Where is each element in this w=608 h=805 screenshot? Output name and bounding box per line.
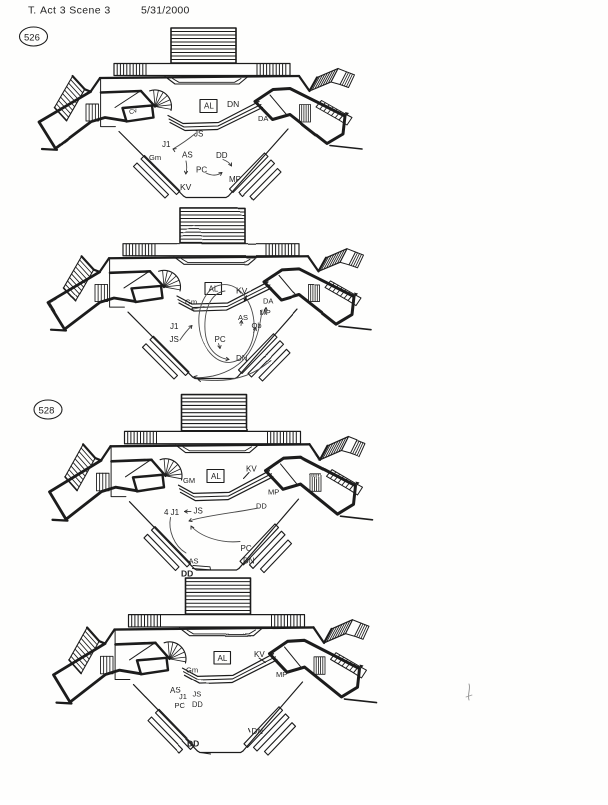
svg-text:PC: PC <box>175 701 186 710</box>
svg-text:DN: DN <box>252 727 264 736</box>
svg-text:AS: AS <box>238 313 248 322</box>
svg-text:DA: DA <box>263 297 273 306</box>
svg-text:JS: JS <box>193 690 202 699</box>
svg-text:J1: J1 <box>170 322 179 331</box>
svg-text:JS: JS <box>194 507 203 516</box>
svg-text:GM: GM <box>183 476 195 485</box>
svg-text:AL: AL <box>211 472 221 481</box>
svg-text:PC: PC <box>241 544 252 553</box>
svg-text:DA: DA <box>258 114 268 123</box>
svg-text:Gm: Gm <box>186 666 198 675</box>
svg-text:DD: DD <box>216 151 228 160</box>
svg-text:Gm: Gm <box>149 153 161 162</box>
svg-text:KV: KV <box>254 650 265 659</box>
svg-text:526: 526 <box>24 33 40 44</box>
svg-text:DD: DD <box>256 502 267 511</box>
svg-text:MP: MP <box>229 175 241 184</box>
svg-text:DD: DD <box>188 739 200 749</box>
svg-text:KV: KV <box>180 182 192 192</box>
svg-text:DN: DN <box>227 99 239 109</box>
svg-text:MP: MP <box>276 670 287 679</box>
svg-text:4 J1: 4 J1 <box>164 508 180 517</box>
svg-text:KV: KV <box>246 465 257 474</box>
svg-text:5/31/2000: 5/31/2000 <box>141 5 190 17</box>
svg-text:PC: PC <box>215 335 226 344</box>
svg-text:KV: KV <box>236 286 248 296</box>
svg-text:JS: JS <box>170 335 179 344</box>
svg-text:DD: DD <box>181 569 193 579</box>
svg-text:MP: MP <box>268 488 279 497</box>
svg-text:AS: AS <box>189 557 199 566</box>
svg-text:AS: AS <box>182 151 193 160</box>
svg-text:J1: J1 <box>162 140 171 149</box>
svg-text:Gm: Gm <box>185 298 197 307</box>
svg-text:DD: DD <box>192 700 203 709</box>
svg-text:DN: DN <box>243 557 255 566</box>
svg-text:AL: AL <box>204 102 214 111</box>
svg-text:528: 528 <box>39 406 55 417</box>
svg-text:AL: AL <box>218 654 228 663</box>
svg-text:Act 3 Scene 3: Act 3 Scene 3 <box>40 5 111 17</box>
svg-text:T.: T. <box>28 5 36 17</box>
